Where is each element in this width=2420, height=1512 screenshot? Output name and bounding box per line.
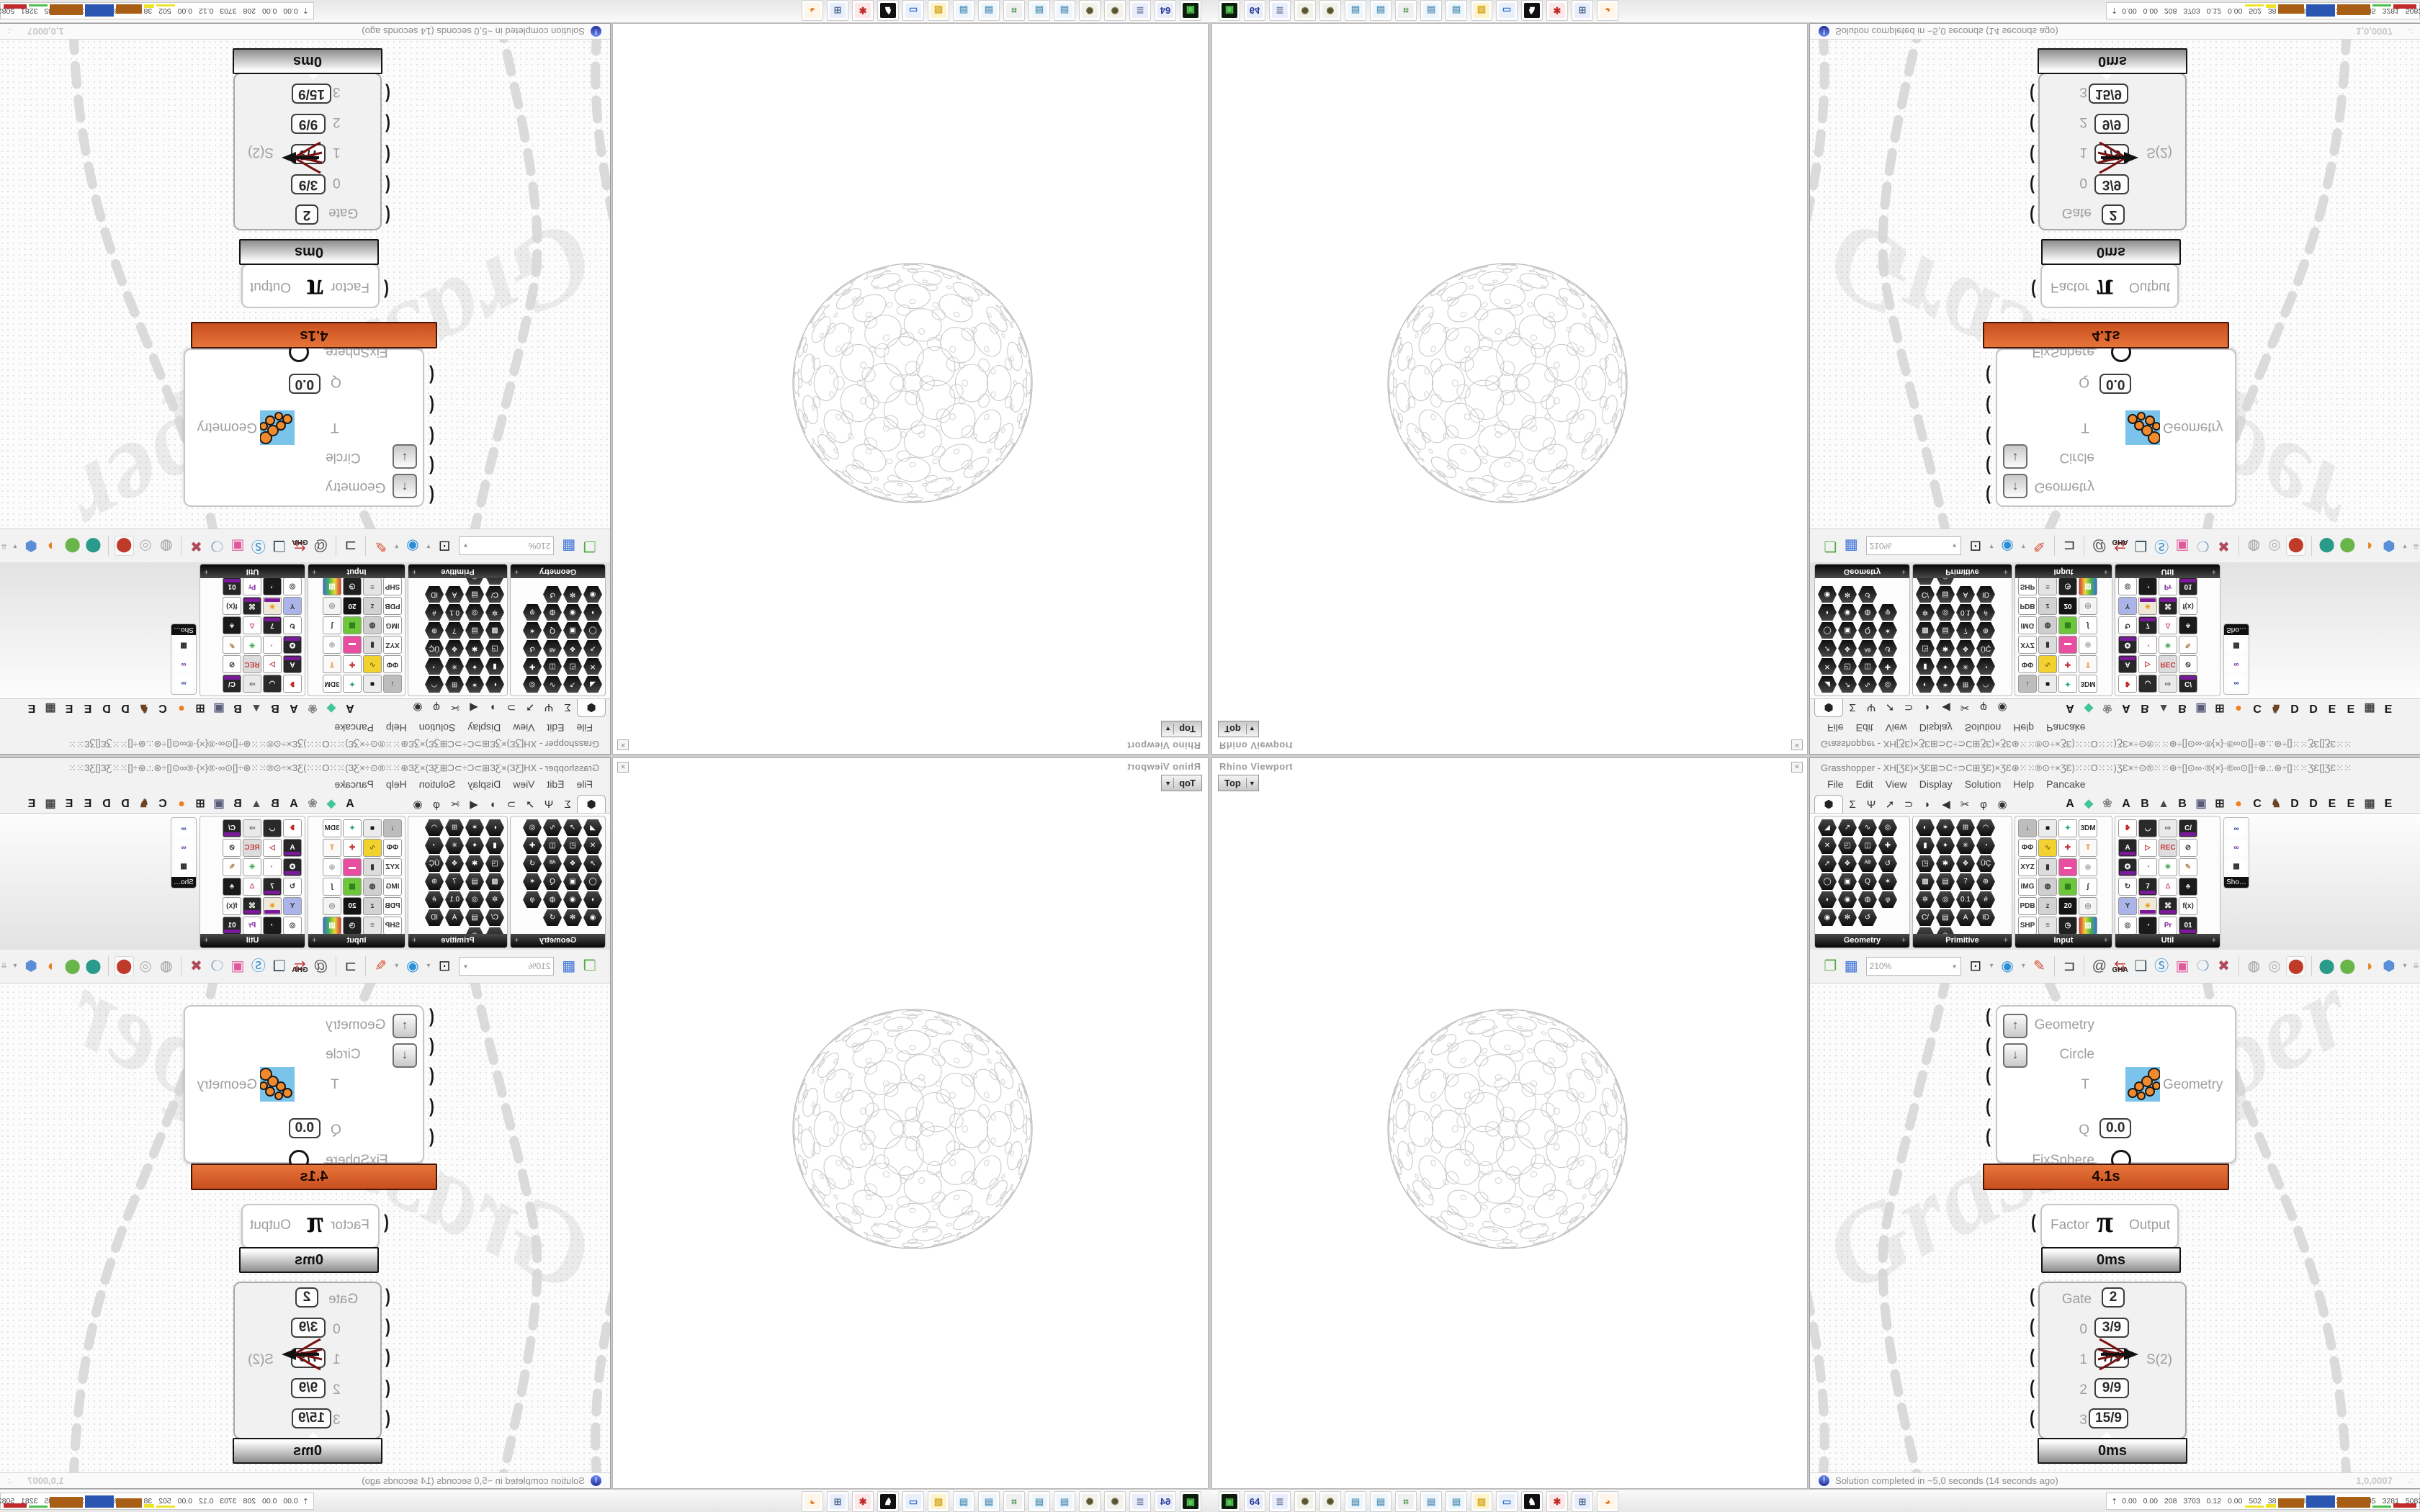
- component-icon[interactable]: 7: [263, 878, 282, 896]
- component-icon[interactable]: Δ: [2159, 616, 2177, 634]
- resize-grip[interactable]: .:: [2408, 1477, 2413, 1485]
- notepad-icon[interactable]: ▤: [953, 1491, 974, 1512]
- component-hex-icon[interactable]: 0.1: [1956, 604, 1975, 621]
- menu-item-edit[interactable]: Edit: [547, 778, 564, 790]
- palette-group-header[interactable]: Geometry+: [511, 934, 605, 948]
- window-arrow-icon[interactable]: ❏: [2132, 536, 2150, 555]
- component-icon[interactable]: ⌘: [2159, 897, 2177, 915]
- component-hex-icon[interactable]: ◳: [1916, 640, 1935, 657]
- add-icon[interactable]: +: [2004, 565, 2008, 578]
- component-icon[interactable]: ■: [2038, 819, 2057, 837]
- component-hex-icon[interactable]: φ: [523, 604, 542, 621]
- component-icon[interactable]: 20: [2058, 597, 2077, 615]
- component-icon[interactable]: ▷: [263, 839, 282, 857]
- component-icon[interactable]: T: [323, 839, 341, 857]
- component-hex-icon[interactable]: ✱: [465, 640, 484, 657]
- component-icon[interactable]: ◎: [283, 577, 302, 595]
- moss-ball-icon[interactable]: ✺: [1319, 1491, 1341, 1512]
- crossed-wires-icon[interactable]: ✖: [187, 957, 205, 976]
- component-hex-icon[interactable]: ▩: [1916, 622, 1935, 639]
- component-hex-icon[interactable]: ÜÇ: [425, 855, 444, 872]
- sketch-pen-icon[interactable]: ✎: [2030, 536, 2048, 555]
- component-hex-icon[interactable]: ✚: [523, 837, 542, 854]
- plug-icon[interactable]: ⊐: [342, 957, 360, 976]
- component-hex-icon[interactable]: ❖: [563, 855, 582, 872]
- ribbon-tab-icon[interactable]: Ψ: [1862, 797, 1881, 813]
- taskbar-stats-widget[interactable]: ⇡ 0.00 0.00 208 3703 0.12 0.00 502 38 79…: [2106, 2, 2420, 19]
- ribbon-tab-icon[interactable]: Ψ: [1862, 699, 1881, 715]
- chevron-down-icon[interactable]: ▾: [2020, 957, 2027, 976]
- ribbon-tab-letter[interactable]: D: [116, 699, 135, 716]
- component-hex-icon[interactable]: ⊞: [1956, 676, 1975, 693]
- orange-sphere-icon[interactable]: ◑: [43, 957, 61, 976]
- ribbon-tab-letter[interactable]: B: [2173, 796, 2192, 813]
- gate-value-box[interactable]: 15/9: [2089, 84, 2128, 104]
- component-hex-icon[interactable]: ✶: [465, 676, 484, 693]
- palette-group-header[interactable]: Input+: [2015, 564, 2112, 578]
- zoom-extents-icon[interactable]: ⊡: [436, 957, 454, 976]
- component-icon[interactable]: ◉: [2079, 636, 2097, 654]
- component-icon[interactable]: Y: [2118, 897, 2137, 915]
- palette-group-header[interactable]: Primitive+: [408, 934, 507, 948]
- input-grip[interactable]: (: [2030, 83, 2035, 105]
- component-icon[interactable]: REC: [243, 655, 261, 673]
- gate-value-box[interactable]: 2: [295, 204, 318, 225]
- component-icon[interactable]: ↓: [2018, 819, 2037, 837]
- component-icon[interactable]: ✷: [263, 597, 282, 615]
- ribbon-tab-letter[interactable]: A: [2117, 796, 2136, 813]
- component-icon[interactable]: ◔: [263, 858, 282, 876]
- component-hex-icon[interactable]: ◉: [1818, 586, 1837, 603]
- component-hex-icon[interactable]: ◯: [583, 622, 602, 639]
- component-icon[interactable]: PDB: [2018, 897, 2037, 915]
- add-icon[interactable]: +: [204, 565, 208, 578]
- input-grip[interactable]: (: [1986, 1035, 1991, 1057]
- ribbon-tab-letter[interactable]: ♞: [135, 699, 153, 717]
- component-icon[interactable]: ◡: [263, 675, 282, 693]
- ribbon-tab-letter[interactable]: A: [284, 699, 303, 716]
- component-hex-icon[interactable]: ✶: [523, 622, 542, 639]
- component-hex-icon[interactable]: ✶: [1936, 676, 1955, 693]
- show-icon[interactable]: ∞: [175, 675, 192, 691]
- component-icon[interactable]: 7: [2138, 616, 2157, 634]
- component-hex-icon[interactable]: ❖: [1838, 640, 1857, 657]
- zoom-dropdown[interactable]: 210%▼: [459, 536, 554, 555]
- palette-group-header[interactable]: Util+: [2115, 564, 2220, 578]
- palette-group-header[interactable]: Util+: [2115, 934, 2220, 948]
- input-grip[interactable]: (: [1986, 485, 1991, 507]
- component-hex-icon[interactable]: ❖: [1838, 855, 1857, 872]
- add-icon[interactable]: +: [514, 934, 519, 947]
- gate-value-box[interactable]: 9/9: [291, 114, 326, 134]
- ribbon-tab-letter[interactable]: E: [22, 796, 41, 813]
- component-hex-icon[interactable]: ◗: [583, 891, 602, 908]
- component-icon[interactable]: 3DM: [323, 819, 341, 837]
- ribbon-tab-letter[interactable]: D: [97, 796, 116, 813]
- computer-icon[interactable]: ⌗: [1003, 1491, 1025, 1512]
- component-icon[interactable]: ✚: [343, 839, 362, 857]
- component-icon[interactable]: Δ: [243, 878, 261, 896]
- red-cylinder-icon[interactable]: ⬤: [115, 956, 134, 976]
- component-hex-icon[interactable]: Q: [1858, 622, 1877, 639]
- component-icon[interactable]: ■: [363, 675, 382, 693]
- component-icon[interactable]: ▷: [263, 655, 282, 673]
- component-hex-icon[interactable]: ◗: [583, 604, 602, 621]
- circlepack-node[interactable]: ↑ Geometry ↓ Circle T Geometry Q: [184, 348, 424, 507]
- component-hex-icon[interactable]: φ: [1878, 604, 1897, 621]
- component-hex-icon[interactable]: ◢: [1818, 819, 1837, 836]
- ring-icon[interactable]: ◎: [137, 957, 155, 976]
- component-icon[interactable]: ∫: [2079, 878, 2097, 896]
- component-hex-icon[interactable]: ◎: [1878, 676, 1897, 693]
- notepad-icon[interactable]: ▤: [1446, 1491, 1467, 1512]
- ribbon-tab-icon[interactable]: ◀: [465, 796, 483, 813]
- ribbon-tab-letter[interactable]: ❀: [303, 795, 322, 813]
- component-hex-icon[interactable]: ✦: [465, 837, 484, 854]
- component-icon[interactable]: ◎: [2118, 577, 2137, 595]
- component-hex-icon[interactable]: ✶: [1936, 819, 1955, 836]
- component-hex-icon[interactable]: ◎: [465, 604, 484, 621]
- component-hex-icon[interactable]: ID: [425, 586, 444, 603]
- menu-item-solution[interactable]: Solution: [419, 778, 456, 790]
- orange-sphere-icon[interactable]: ◑: [2359, 957, 2378, 976]
- ribbon-tab-icon[interactable]: ◗: [483, 797, 502, 813]
- component-icon[interactable]: ✳: [243, 858, 261, 876]
- chevron-down-icon[interactable]: ▾: [393, 536, 400, 555]
- component-icon[interactable]: ◡: [263, 819, 282, 837]
- ribbon-tab-icon[interactable]: ◉: [1993, 699, 2012, 716]
- gh-canvas[interactable]: Grasshopper ( ( ( ( ( ) ↑: [0, 39, 610, 529]
- menu-item-display[interactable]: Display: [467, 722, 501, 734]
- component-hex-icon[interactable]: ◐: [1916, 676, 1935, 693]
- green-capsule-icon[interactable]: ⬤: [2339, 536, 2357, 555]
- ribbon-tab-letter[interactable]: E: [2323, 699, 2341, 716]
- component-hex-icon[interactable]: ◠: [425, 676, 444, 693]
- gha-cycle-icon[interactable]: ⇆GHA: [2111, 536, 2129, 555]
- blue-polyhedron-icon[interactable]: ⬢: [2380, 957, 2398, 976]
- component-icon[interactable]: ■: [2038, 675, 2057, 693]
- crossed-wires-icon[interactable]: ✖: [2215, 957, 2233, 976]
- component-icon[interactable]: PDB: [383, 597, 402, 615]
- folder-icon[interactable]: ▨: [1471, 0, 1492, 21]
- component-hex-icon[interactable]: ▤: [465, 873, 484, 890]
- add-icon[interactable]: +: [2004, 934, 2008, 947]
- component-icon[interactable]: ▬: [2058, 858, 2077, 876]
- component-icon[interactable]: 3DM: [2079, 819, 2097, 837]
- component-hex-icon[interactable]: ✦: [1936, 658, 1955, 675]
- component-icon[interactable]: ■: [363, 819, 382, 837]
- input-grip[interactable]: (: [385, 1377, 390, 1399]
- window-arrow-icon[interactable]: ❏: [270, 957, 288, 976]
- save-file-icon[interactable]: ▦: [1842, 536, 1860, 555]
- gate-value-box[interactable]: 15/9: [2089, 1408, 2128, 1428]
- ribbon-tab-icon[interactable]: φ: [427, 699, 446, 715]
- component-icon[interactable]: ▥: [2079, 917, 2097, 935]
- component-icon[interactable]: ↻: [283, 878, 302, 896]
- ribbon-tab-letter[interactable]: ●: [172, 699, 191, 716]
- component-hex-icon[interactable]: A: [445, 586, 464, 603]
- component-icon[interactable]: REC: [2159, 655, 2177, 673]
- moss-ball-icon[interactable]: ✺: [1319, 0, 1341, 21]
- overflow-icon[interactable]: ⇊: [0, 957, 8, 976]
- component-icon[interactable]: ∫: [323, 616, 341, 634]
- add-icon[interactable]: +: [204, 934, 208, 947]
- component-icon[interactable]: ✦: [2058, 819, 2077, 837]
- component-hex-icon[interactable]: ◯: [583, 873, 602, 890]
- component-hex-icon[interactable]: ▤: [465, 586, 484, 603]
- component-hex-icon[interactable]: ✱: [1936, 640, 1955, 657]
- component-hex-icon[interactable]: ᴬᴮ: [543, 855, 562, 872]
- component-hex-icon[interactable]: ✻: [563, 586, 582, 603]
- component-icon[interactable]: ▷: [2138, 839, 2157, 857]
- ribbon-tab-letter[interactable]: ◆: [2079, 699, 2098, 717]
- input-grip[interactable]: (: [385, 83, 390, 105]
- component-icon[interactable]: ✷: [263, 897, 282, 915]
- component-icon[interactable]: ◔: [263, 917, 282, 935]
- component-icon[interactable]: ♣: [2179, 616, 2197, 634]
- component-hex-icon[interactable]: ▤: [1936, 622, 1955, 639]
- ribbon-tab-letter[interactable]: C: [153, 796, 172, 813]
- component-hex-icon[interactable]: ⊕: [425, 622, 444, 639]
- folder-icon[interactable]: ▨: [928, 1491, 949, 1512]
- ribbon-tab-letter[interactable]: D: [2285, 796, 2304, 813]
- component-hex-icon[interactable]: ▣: [563, 622, 582, 639]
- input-grip[interactable]: (: [429, 426, 434, 448]
- ribbon-tab-letter[interactable]: ▲: [2154, 699, 2173, 716]
- component-hex-icon[interactable]: ◔: [425, 658, 444, 675]
- palette-group-header[interactable]: Util+: [200, 564, 305, 578]
- palette-group-header[interactable]: Geometry+: [511, 564, 605, 578]
- component-icon[interactable]: 7: [2138, 878, 2157, 896]
- gh-app-icon[interactable]: ▣: [1219, 0, 1240, 21]
- chevron-down-icon[interactable]: ▾: [1987, 536, 1995, 555]
- ribbon-tab-letter[interactable]: A: [2061, 699, 2079, 716]
- ribbon-tab-letter[interactable]: E: [2379, 699, 2398, 716]
- component-icon[interactable]: SHP: [383, 917, 402, 935]
- component-icon[interactable]: REC: [2159, 839, 2177, 857]
- component-hex-icon[interactable]: ◐: [485, 819, 504, 836]
- component-icon[interactable]: ◉: [323, 858, 341, 876]
- component-icon[interactable]: Y: [2118, 597, 2137, 615]
- menu-item-solution[interactable]: Solution: [419, 722, 456, 734]
- ribbon-tab-letter[interactable]: E: [2323, 796, 2341, 813]
- ribbon-tab-letter[interactable]: B: [228, 796, 247, 813]
- component-hex-icon[interactable]: ᴬᴮ: [543, 640, 562, 657]
- chevron-down-icon[interactable]: ▾: [424, 536, 432, 555]
- component-hex-icon[interactable]: ◢: [583, 676, 602, 693]
- component-icon[interactable]: ⊘: [223, 655, 241, 673]
- ribbon-tab-icon[interactable]: ⬢: [1814, 795, 1843, 813]
- component-hex-icon[interactable]: ✦: [1936, 837, 1955, 854]
- component-icon[interactable]: ✪: [2118, 858, 2137, 876]
- component-hex-icon[interactable]: ✕: [1818, 658, 1837, 675]
- component-icon[interactable]: A: [283, 655, 302, 673]
- input-grip[interactable]: (: [384, 279, 389, 301]
- ribbon-tab-letter[interactable]: D: [2304, 796, 2323, 813]
- ribbon-tab-letter[interactable]: D: [116, 796, 135, 813]
- component-icon[interactable]: XYZ: [383, 636, 402, 654]
- component-icon[interactable]: ◔: [263, 577, 282, 595]
- component-hex-icon[interactable]: ↗: [1838, 676, 1857, 693]
- cat-icon[interactable]: ♞: [1521, 1491, 1543, 1512]
- component-hex-icon[interactable]: C/: [1916, 586, 1935, 603]
- ribbon-tab-letter[interactable]: E: [79, 796, 97, 813]
- component-hex-icon[interactable]: ✦: [465, 658, 484, 675]
- notepad-icon[interactable]: ▤: [1370, 1491, 1391, 1512]
- component-hex-icon[interactable]: ◢: [583, 819, 602, 836]
- palette-group-header[interactable]: Primitive+: [1913, 934, 2012, 948]
- show-icon[interactable]: ▦: [2228, 858, 2245, 874]
- component-icon[interactable]: ⇨: [243, 675, 261, 693]
- input-grip[interactable]: (: [2030, 1407, 2035, 1429]
- at-icon[interactable]: @: [312, 536, 330, 555]
- at-icon[interactable]: @: [312, 957, 330, 976]
- component-hex-icon[interactable]: ✚: [523, 658, 542, 675]
- input-grip[interactable]: (: [429, 364, 434, 387]
- component-hex-icon[interactable]: ◫: [1858, 837, 1877, 854]
- menu-item-file[interactable]: File: [576, 722, 593, 734]
- input-grip[interactable]: (: [2030, 204, 2035, 227]
- component-hex-icon[interactable]: φ: [523, 891, 542, 908]
- palette-group-header[interactable]: Primitive+: [1913, 564, 2012, 578]
- component-icon[interactable]: ◎: [283, 917, 302, 935]
- component-hex-icon[interactable]: ✻: [1838, 909, 1857, 926]
- save-file-icon[interactable]: ▦: [560, 957, 578, 976]
- component-icon[interactable]: ≡: [363, 917, 382, 935]
- red-gear-icon[interactable]: ✱: [852, 0, 874, 21]
- calculator-icon[interactable]: ⊞: [827, 1491, 848, 1512]
- component-hex-icon[interactable]: ✶: [1878, 873, 1897, 890]
- ribbon-tab-letter[interactable]: ♞: [2267, 699, 2285, 717]
- component-icon[interactable]: f(x): [223, 597, 241, 615]
- menu-item-help[interactable]: Help: [2013, 722, 2034, 734]
- component-hex-icon[interactable]: ◍: [1858, 891, 1877, 908]
- component-icon[interactable]: ◔: [263, 636, 282, 654]
- notepad-icon[interactable]: ▤: [1054, 0, 1075, 21]
- ribbon-tab-icon[interactable]: Ψ: [539, 797, 558, 813]
- component-icon[interactable]: ✎: [2179, 858, 2197, 876]
- component-icon[interactable]: ✪: [2118, 636, 2137, 654]
- ribbon-tab-letter[interactable]: ▦: [2360, 795, 2379, 813]
- monitor-dialog-icon[interactable]: ▭: [1496, 0, 1518, 21]
- component-hex-icon[interactable]: ◰: [563, 837, 582, 854]
- component-icon[interactable]: ∫: [2079, 616, 2097, 634]
- component-hex-icon[interactable]: ✳: [1956, 837, 1975, 854]
- component-icon[interactable]: IMG: [2018, 878, 2037, 896]
- add-icon[interactable]: +: [412, 934, 416, 947]
- component-hex-icon[interactable]: ↗: [1838, 819, 1857, 836]
- palette-group-header[interactable]: Util+: [200, 934, 305, 948]
- chevron-down-icon[interactable]: ▾: [2401, 536, 2408, 555]
- component-hex-icon[interactable]: ▮: [1916, 837, 1935, 854]
- component-icon[interactable]: ≡: [2038, 917, 2057, 935]
- component-icon[interactable]: ⌘: [2159, 597, 2177, 615]
- component-hex-icon[interactable]: ✳: [445, 658, 464, 675]
- notepad-icon[interactable]: ▤: [953, 0, 974, 21]
- component-icon[interactable]: ▦: [343, 878, 362, 896]
- component-hex-icon[interactable]: ⊞: [445, 819, 464, 836]
- component-hex-icon[interactable]: ✲: [485, 891, 504, 908]
- plug-icon[interactable]: ⊐: [342, 536, 360, 555]
- component-icon[interactable]: ◷: [343, 917, 362, 935]
- preview-eye-icon[interactable]: ◉: [1999, 957, 2017, 976]
- component-hex-icon[interactable]: #: [425, 604, 444, 621]
- ribbon-tab-icon[interactable]: ◉: [408, 796, 427, 813]
- component-hex-icon[interactable]: ▮: [485, 658, 504, 675]
- gate-value-box[interactable]: 15/9: [292, 84, 331, 104]
- component-icon[interactable]: ⌘: [243, 897, 261, 915]
- notepad-icon[interactable]: ▤: [1054, 1491, 1075, 1512]
- gate-value-box[interactable]: 2: [2102, 1287, 2125, 1308]
- moss-ball-icon[interactable]: ✺: [1104, 0, 1126, 21]
- calculator-icon[interactable]: ⊞: [827, 0, 848, 21]
- component-hex-icon[interactable]: ✚: [1878, 658, 1897, 675]
- notepad-icon[interactable]: ▤: [1028, 0, 1050, 21]
- ribbon-tab-icon[interactable]: ◗: [483, 699, 502, 715]
- component-hex-icon[interactable]: ∿: [1858, 819, 1877, 836]
- menu-item-edit[interactable]: Edit: [547, 722, 564, 734]
- ribbon-tab-icon[interactable]: ✂: [1955, 796, 1974, 813]
- component-icon[interactable]: ✦: [343, 675, 362, 693]
- s-magnifier-icon[interactable]: Ⓢ: [2153, 957, 2171, 976]
- monitor-dialog-icon[interactable]: ▭: [1496, 1491, 1518, 1512]
- component-icon[interactable]: z: [363, 597, 382, 615]
- component-icon[interactable]: ≡: [2038, 577, 2057, 595]
- palette-group-header[interactable]: Input+: [308, 934, 405, 948]
- zoom-dropdown[interactable]: 210%▼: [459, 957, 554, 976]
- gh-app-icon[interactable]: ▣: [1180, 0, 1201, 21]
- component-icon[interactable]: ♣: [2179, 878, 2197, 896]
- ring-icon[interactable]: ◎: [2266, 536, 2284, 555]
- add-icon[interactable]: +: [312, 934, 316, 947]
- ribbon-tab-icon[interactable]: ⊃: [1899, 699, 1918, 716]
- component-hex-icon[interactable]: ⊞: [1956, 819, 1975, 836]
- component-icon[interactable]: Pr: [2159, 917, 2177, 935]
- menu-item-pancake[interactable]: Pancake: [334, 722, 373, 734]
- component-icon[interactable]: ◎: [2079, 897, 2097, 915]
- input-grip[interactable]: (: [385, 1407, 390, 1429]
- q-value-box[interactable]: 0.0: [2099, 1118, 2131, 1138]
- ribbon-tab-icon[interactable]: Σ: [558, 797, 577, 813]
- overflow-icon[interactable]: ⇊: [0, 536, 8, 555]
- component-icon[interactable]: ↻: [2118, 878, 2137, 896]
- component-icon[interactable]: ↓: [2018, 675, 2037, 693]
- add-icon[interactable]: +: [2104, 565, 2108, 578]
- component-hex-icon[interactable]: ✶: [465, 819, 484, 836]
- ribbon-tab-letter[interactable]: ⊞: [2210, 795, 2229, 813]
- component-icon[interactable]: z: [2038, 597, 2057, 615]
- notepad-icon[interactable]: ▤: [1028, 1491, 1050, 1512]
- component-hex-icon[interactable]: ◎: [1878, 819, 1897, 836]
- component-icon[interactable]: ♣: [223, 616, 241, 634]
- component-hex-icon[interactable]: ◉: [563, 604, 582, 621]
- window-arrow-icon[interactable]: ❏: [2132, 957, 2150, 976]
- input-grip[interactable]: (: [2031, 279, 2036, 301]
- component-hex-icon[interactable]: ◫: [1858, 658, 1877, 675]
- component-hex-icon[interactable]: ◳: [485, 855, 504, 872]
- component-icon[interactable]: ◷: [2058, 917, 2077, 935]
- component-icon[interactable]: ◍: [2038, 616, 2057, 634]
- show-icon[interactable]: ∞: [2228, 840, 2245, 855]
- notepad-icon[interactable]: ▤: [1345, 0, 1366, 21]
- component-icon[interactable]: ✚: [2058, 655, 2077, 673]
- gh-canvas[interactable]: Grasshopper ( ( ( ( ( ) ↑: [0, 983, 610, 1473]
- component-hex-icon[interactable]: ▩: [485, 622, 504, 639]
- component-hex-icon[interactable]: ◎: [523, 819, 542, 836]
- component-icon[interactable]: ▬: [2058, 636, 2077, 654]
- ribbon-tab-letter[interactable]: E: [2341, 699, 2360, 716]
- gate-value-box[interactable]: 9/9: [2094, 114, 2129, 134]
